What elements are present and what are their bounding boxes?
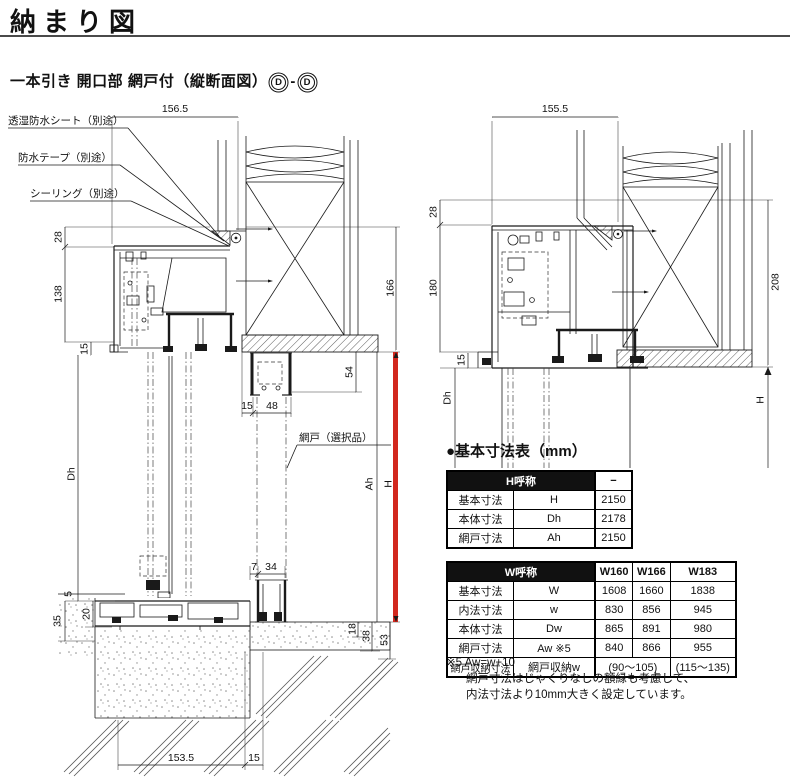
dim-label: 156.5 (162, 103, 188, 115)
footnote-line: 内法寸法より10mm大きく設定しています。 (446, 688, 695, 704)
w-table-col: W160 (595, 562, 633, 582)
door-leaf-lines (140, 352, 191, 598)
row-value: 2150 (595, 491, 632, 510)
row-value: 2178 (595, 510, 632, 529)
dim-label: 18 (347, 623, 359, 635)
dim-label: 166 (385, 279, 397, 297)
row-value: 1608 (595, 582, 633, 601)
dim-label: 15 (248, 752, 260, 764)
row-value: 2150 (595, 529, 632, 549)
dimension-lines (437, 117, 772, 468)
table-row: 基本寸法 H 2150 (447, 491, 632, 510)
interior-floor-fill (58, 596, 95, 656)
screen-lower-rail (255, 580, 288, 622)
table-row: 網戸寸法 Aw ※5 840 866 955 (447, 639, 736, 658)
row-value: 945 (670, 601, 736, 620)
w-table-name: W呼称 (447, 562, 595, 582)
dim-label: H (755, 396, 767, 404)
callout-screen-door: 網戸（選択品） (299, 431, 373, 444)
dim-label: 180 (428, 279, 440, 297)
table-row: 内法寸法 w 830 856 945 (447, 601, 736, 620)
dim-label: 138 (53, 285, 65, 303)
head-frame (110, 246, 237, 352)
dim-label: 7 (251, 561, 257, 573)
h-table-col: − (595, 471, 632, 491)
row-symbol: Ah (514, 529, 596, 549)
dim-label: 15 (241, 400, 253, 412)
table-header-row: H呼称 − (447, 471, 632, 491)
h-spec-table: H呼称 − 基本寸法 H 2150 本体寸法 Dh 2178 網戸寸法 Ah 2… (446, 470, 633, 549)
frame-housing (478, 226, 648, 468)
dim-label: 48 (266, 400, 278, 412)
row-value: 891 (633, 620, 670, 639)
row-label: 基本寸法 (447, 491, 514, 510)
row-label: 基本寸法 (447, 582, 514, 601)
row-symbol: H (514, 491, 596, 510)
dim-label: 28 (53, 231, 65, 243)
dim-label: 153.5 (168, 752, 194, 764)
dim-label: Ah (364, 477, 376, 490)
table-row: 基本寸法 W 1608 1660 1838 (447, 582, 736, 601)
table-row: 網戸寸法 Ah 2150 (447, 529, 632, 549)
row-value: 840 (595, 639, 633, 658)
dim-label: 20 (81, 608, 93, 620)
row-label: 網戸寸法 (447, 639, 514, 658)
row-label: 本体寸法 (447, 510, 514, 529)
row-value: 866 (633, 639, 670, 658)
spec-section: ●基本寸法表（mm） H呼称 − 基本寸法 H 2150 本体寸法 Dh 217… (446, 440, 746, 690)
dim-label: 15 (79, 343, 91, 355)
spec-title: ●基本寸法表（mm） (446, 440, 746, 461)
row-value: 955 (670, 639, 736, 658)
table-row: 本体寸法 Dw 865 891 980 (447, 620, 736, 639)
w-table-col: W166 (633, 562, 670, 582)
row-value: 980 (670, 620, 736, 639)
footnotes: ※5 Aw=w+10 網戸寸法はじゃくりなしの額縁も考慮して、 内法寸法より10… (446, 656, 695, 704)
dim-label: 35 (52, 615, 64, 627)
drawing-page: 納まり図 一本引き 開口部 網戸付（縦断面図）D-D (0, 0, 790, 780)
row-value: 830 (595, 601, 633, 620)
row-symbol: Dh (514, 510, 596, 529)
callout-waterproof-tape: 防水テープ（別途） (18, 151, 112, 164)
row-symbol: w (514, 601, 596, 620)
dim-label: 15 (456, 354, 468, 366)
right-section-diagram: 155.5 28 180 15 Dh 208 H (428, 103, 782, 468)
table-header-row: W呼称 W160 W166 W183 (447, 562, 736, 582)
footnote-line: ※5 Aw=w+10 (446, 656, 695, 672)
footnote-line: 網戸寸法はじゃくりなしの額縁も考慮して、 (446, 672, 695, 688)
callout-moisture-sheet: 透湿防水シート（別途） (8, 114, 124, 127)
screen-upper-rail (250, 353, 292, 395)
sill-frame (95, 598, 250, 630)
row-value: 865 (595, 620, 633, 639)
dim-label: 155.5 (542, 103, 568, 115)
dim-label: 5 (63, 591, 75, 597)
callout-sealing: シーリング（別途） (30, 187, 125, 200)
h-table-name: H呼称 (447, 471, 595, 491)
row-value: 1660 (633, 582, 670, 601)
row-symbol: Aw ※5 (514, 639, 596, 658)
dim-label: Dh (442, 391, 454, 405)
row-label: 内法寸法 (447, 601, 514, 620)
dim-label: 53 (379, 634, 391, 646)
row-label: 網戸寸法 (447, 529, 514, 549)
soffit-band (242, 335, 378, 352)
row-symbol: W (514, 582, 596, 601)
table-row: 本体寸法 Dh 2178 (447, 510, 632, 529)
wall-structure (577, 130, 752, 350)
dim-label: 54 (344, 366, 356, 378)
dim-label: H (383, 480, 395, 488)
row-value: 1838 (670, 582, 736, 601)
foundation (95, 630, 250, 718)
dim-label: 208 (770, 273, 782, 291)
dim-label: Dh (66, 467, 78, 481)
dim-label: 34 (265, 561, 277, 573)
wall-structure (218, 136, 358, 335)
dim-label: 28 (428, 206, 440, 218)
row-value: 856 (633, 601, 670, 620)
dim-label: 38 (361, 630, 373, 642)
row-label: 本体寸法 (447, 620, 514, 639)
row-symbol: Dw (514, 620, 596, 639)
left-section-diagram: 透湿防水シート（別途） 防水テープ（別途） シーリング（別途） 網戸（選択品） … (8, 103, 400, 776)
callouts: 透湿防水シート（別途） 防水テープ（別途） シーリング（別途） 網戸（選択品） (8, 114, 391, 468)
w-table-col: W183 (670, 562, 736, 582)
